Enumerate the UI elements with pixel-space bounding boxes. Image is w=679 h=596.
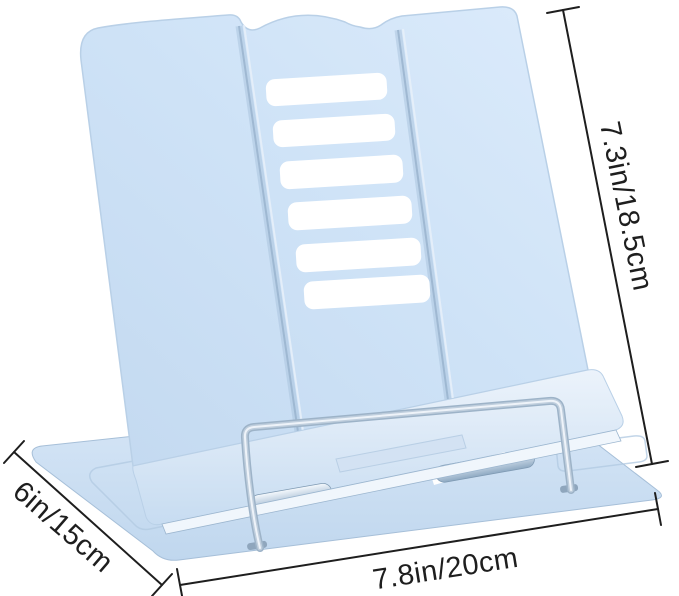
dimension-tick: [4, 441, 24, 463]
dimension-label-height: 7.3in/18.5cm: [593, 119, 659, 294]
book-stand-illustration: 7.3in/18.5cm 7.8in/20cm 6in/15cm: [0, 0, 679, 596]
product-dimension-image: 7.3in/18.5cm 7.8in/20cm 6in/15cm: [0, 0, 679, 596]
dimension-tick: [177, 569, 183, 596]
dimension-tick: [152, 574, 172, 596]
dimension-label-width: 7.8in/20cm: [371, 542, 521, 596]
